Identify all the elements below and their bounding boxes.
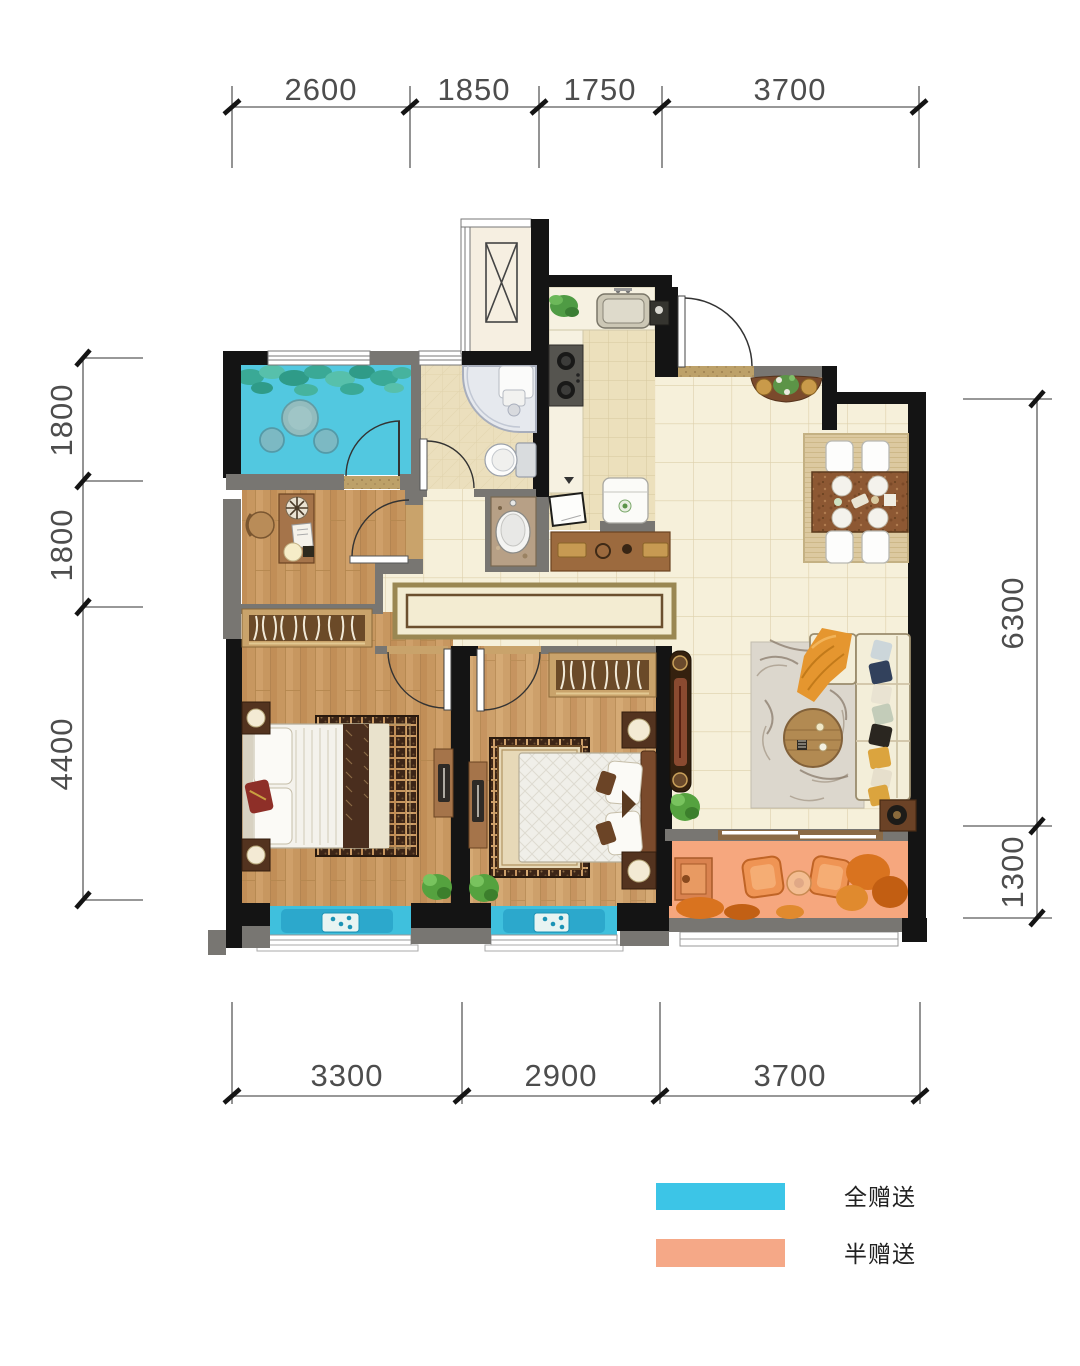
svg-text:1800: 1800: [44, 509, 79, 582]
svg-text:1300: 1300: [995, 836, 1030, 909]
svg-text:1850: 1850: [438, 72, 511, 107]
svg-text:3300: 3300: [311, 1058, 384, 1093]
svg-text:全赠送: 全赠送: [844, 1184, 916, 1210]
svg-text:6300: 6300: [995, 577, 1030, 650]
svg-text:3700: 3700: [754, 1058, 827, 1093]
svg-text:1800: 1800: [44, 384, 79, 457]
svg-text:4400: 4400: [44, 718, 79, 791]
svg-text:3700: 3700: [754, 72, 827, 107]
svg-text:1750: 1750: [564, 72, 637, 107]
svg-text:2600: 2600: [285, 72, 358, 107]
svg-text:2900: 2900: [525, 1058, 598, 1093]
svg-text:半赠送: 半赠送: [844, 1241, 916, 1267]
